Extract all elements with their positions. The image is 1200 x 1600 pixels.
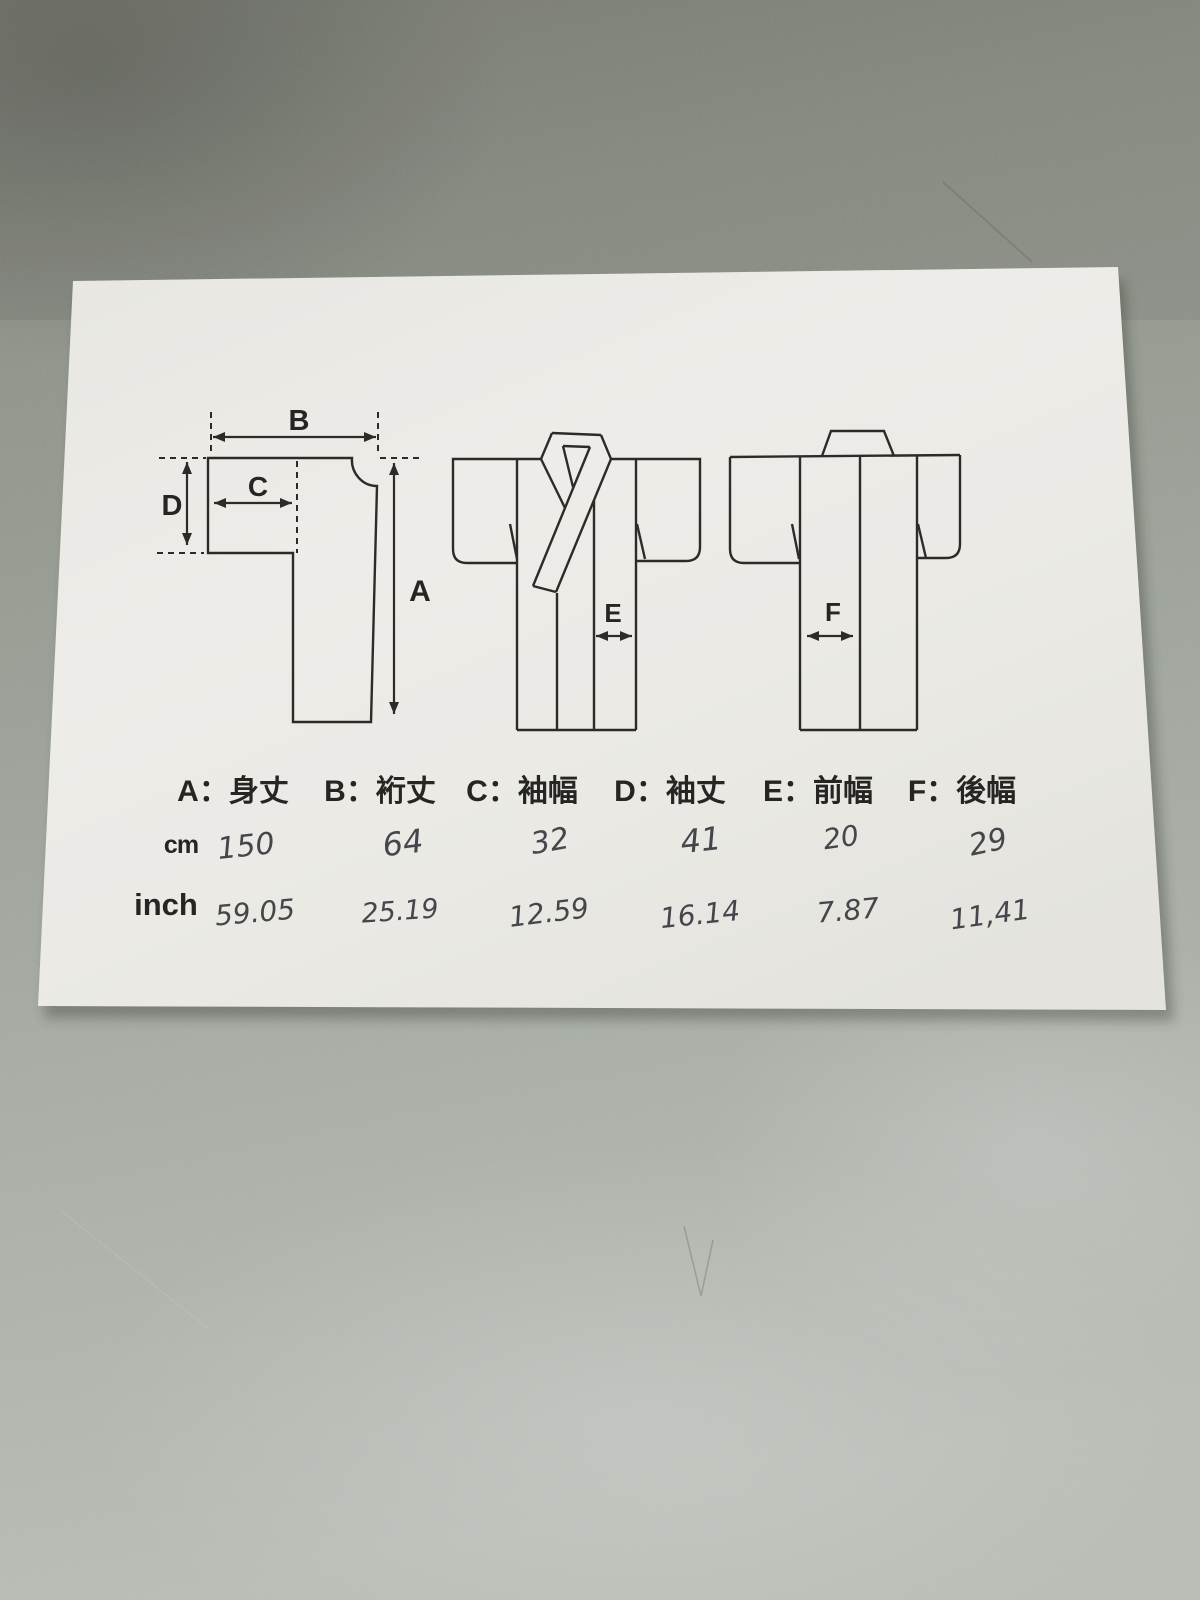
cm-value-A: 150 bbox=[216, 826, 277, 867]
legend-item-D: D：袖丈 bbox=[614, 774, 726, 808]
cm-value-B: 64 bbox=[380, 822, 425, 865]
legend-item-F: F：後幅 bbox=[908, 775, 1016, 808]
legend-item-E: E：前幅 bbox=[763, 775, 873, 808]
label-F: F bbox=[825, 597, 841, 627]
unit-label-inch: inch bbox=[134, 887, 198, 922]
inch-value-E: 7.87 bbox=[815, 891, 880, 929]
label-E: E bbox=[604, 598, 621, 628]
cm-value-D: 41 bbox=[679, 819, 723, 861]
label-B: B bbox=[289, 405, 310, 437]
unit-label-cm: cm bbox=[164, 831, 198, 859]
photo-of-kimono-measurement-sheet: B C D A E bbox=[0, 0, 1200, 1600]
label-D: D bbox=[162, 490, 183, 522]
cm-value-E: 20 bbox=[821, 819, 861, 857]
legend-item-C: C：袖幅 bbox=[466, 774, 578, 808]
inch-value-B: 25.19 bbox=[360, 893, 439, 929]
label-C: C bbox=[248, 471, 268, 502]
label-A: A bbox=[409, 575, 431, 608]
inch-value-A: 59.05 bbox=[214, 893, 297, 933]
collar-inner-top bbox=[563, 446, 590, 447]
legend-item-B: B：裄丈 bbox=[324, 775, 436, 808]
cm-value-C: 32 bbox=[528, 821, 572, 862]
legend-item-A: A：身丈 bbox=[177, 775, 289, 808]
